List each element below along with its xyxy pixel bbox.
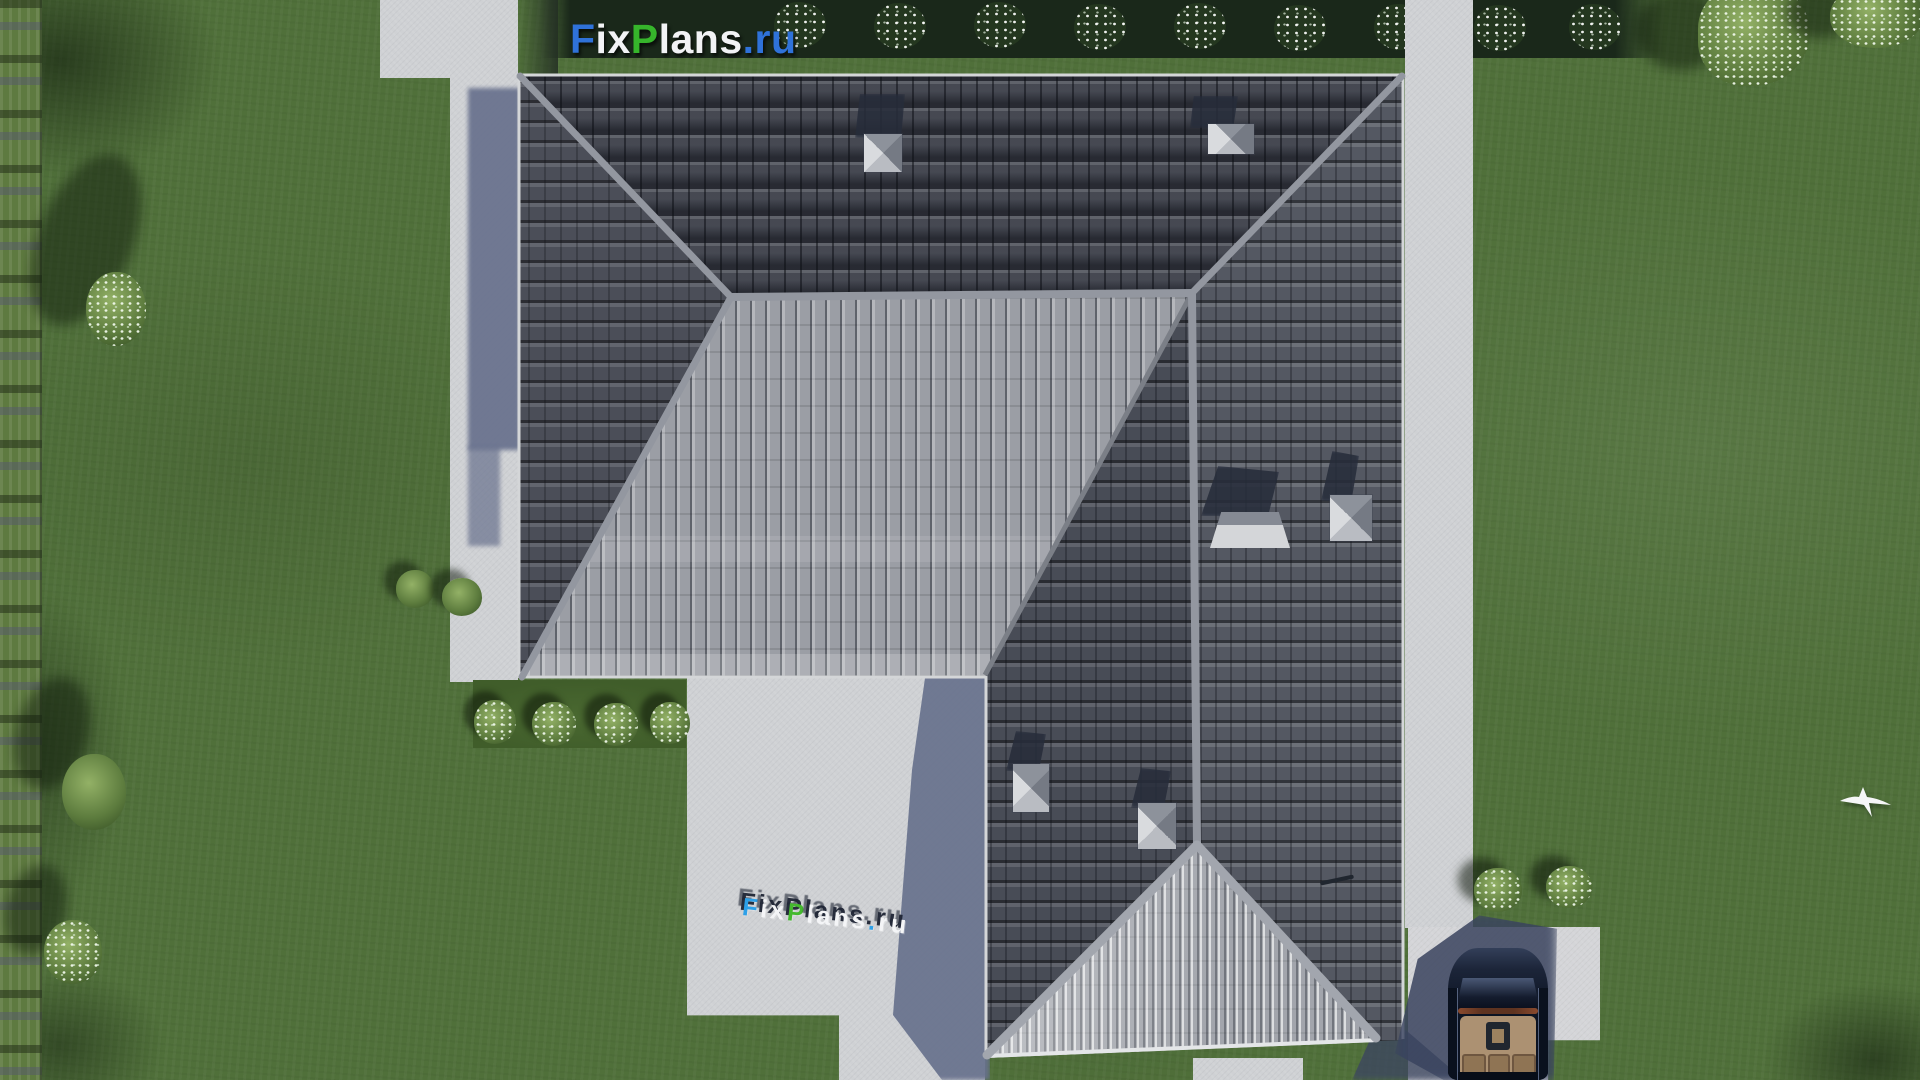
- car-sill-left: [1448, 988, 1458, 1080]
- roof-hip-gable-right: [1197, 845, 1376, 1038]
- car-console-inlay: [1492, 1029, 1504, 1043]
- car-group: [1395, 912, 1605, 1080]
- logo-part: P: [631, 16, 659, 62]
- bird-silhouette: [1840, 787, 1891, 817]
- roof-ridge-wing: [1192, 293, 1197, 845]
- car-console: [1486, 1022, 1510, 1050]
- chimney-shadow: [855, 94, 905, 138]
- roof-vent-cap: [1210, 512, 1290, 548]
- roof-vent-cap: [1138, 803, 1176, 849]
- roof-hip-northwest: [520, 76, 731, 297]
- logo-part: .ru: [743, 16, 797, 62]
- chimney-cap: [864, 134, 902, 172]
- roof-hip-southwest: [522, 297, 731, 677]
- roof-vent-cap: [1013, 764, 1049, 812]
- logo-part: ix: [596, 16, 631, 62]
- chimney-cap: [1208, 124, 1254, 154]
- watermark-logo: FixPlans.ru: [570, 16, 797, 63]
- car-body: [1448, 948, 1548, 1080]
- car-interior: [1460, 1016, 1536, 1078]
- sign-letter: u: [889, 910, 910, 941]
- roof-hip-gable-left: [987, 845, 1197, 1055]
- car-rear-deck: [1458, 1072, 1538, 1080]
- flying-bird: [1838, 786, 1892, 818]
- eave-trim-gable: [986, 1040, 1378, 1056]
- logo-part: F: [570, 16, 596, 62]
- car-windshield: [1456, 978, 1540, 1010]
- car-sill-right: [1538, 988, 1548, 1080]
- car-dashboard: [1458, 1008, 1538, 1014]
- roof-ridge-main: [731, 293, 1192, 297]
- roof-valley: [985, 293, 1192, 675]
- logo-part: lans: [659, 16, 743, 62]
- aerial-render-scene: FixPlans.ru FixPlans.ru: [0, 0, 1920, 1080]
- roof-vent-cap: [1330, 495, 1372, 541]
